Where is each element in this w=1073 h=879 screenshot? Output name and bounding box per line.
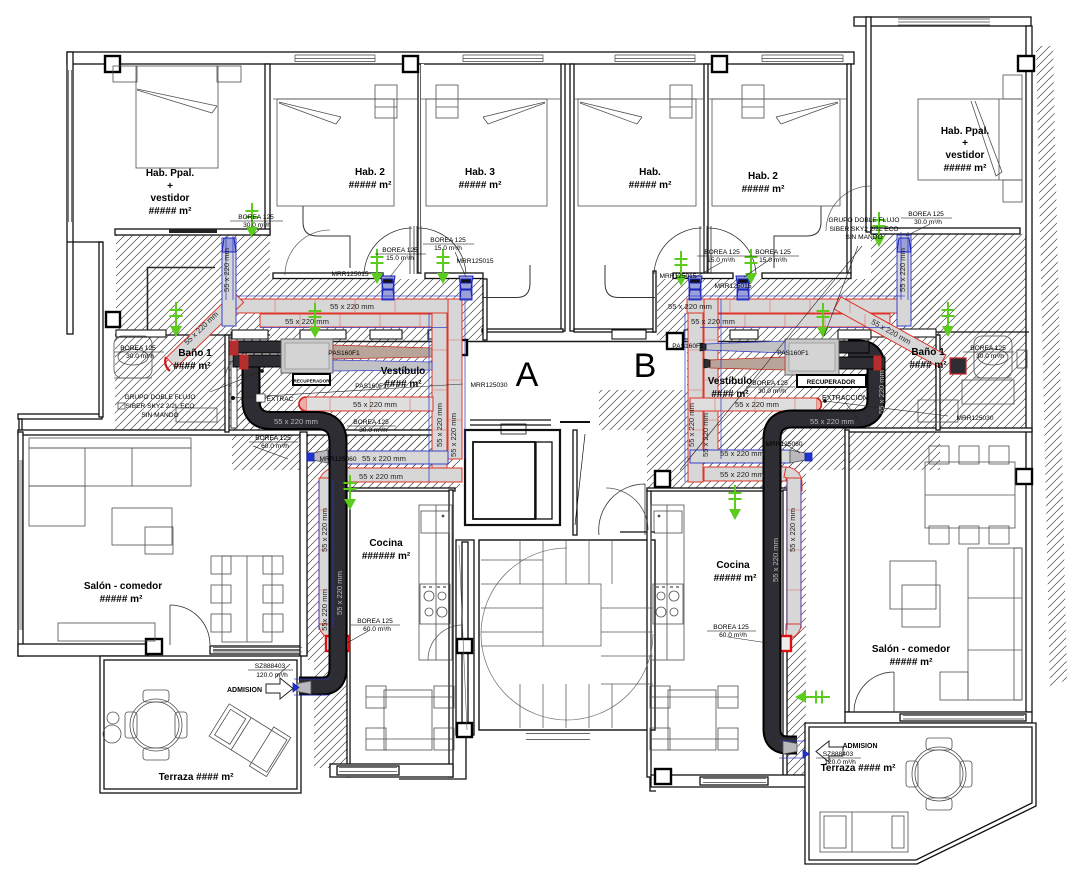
svg-text:##### m²: ##### m² <box>944 163 987 174</box>
svg-text:BOREA 125: BOREA 125 <box>120 345 156 352</box>
svg-text:##### m²: ##### m² <box>629 180 672 191</box>
svg-text:55 x 220 mm: 55 x 220 mm <box>788 508 797 552</box>
svg-text:##### m²: ##### m² <box>100 594 143 605</box>
svg-text:BOREA 125: BOREA 125 <box>908 211 944 218</box>
svg-text:Salón - comedor: Salón - comedor <box>872 644 950 655</box>
svg-text:##### m²: ##### m² <box>349 180 392 191</box>
svg-text:55 x 220 mm: 55 x 220 mm <box>735 400 779 409</box>
svg-text:EXTRAC: EXTRAC <box>267 396 294 403</box>
svg-text:GRUPO DOBLE FLUJO: GRUPO DOBLE FLUJO <box>828 217 899 224</box>
svg-text:MRR125015: MRR125015 <box>714 283 751 290</box>
svg-text:55 x 220 mm: 55 x 220 mm <box>274 417 318 426</box>
svg-text:60.0 m³/h: 60.0 m³/h <box>261 443 289 450</box>
svg-text:60.0 m³/h: 60.0 m³/h <box>719 632 747 639</box>
svg-text:120.0 m³/h: 120.0 m³/h <box>256 672 288 679</box>
svg-text:Cocina: Cocina <box>369 538 403 549</box>
svg-text:55 x 220 mm: 55 x 220 mm <box>771 538 780 582</box>
svg-text:BOREA 125: BOREA 125 <box>238 214 274 221</box>
svg-text:PAS160F1: PAS160F1 <box>355 383 387 390</box>
svg-text:Hab. 3: Hab. 3 <box>465 167 495 178</box>
svg-text:55 x 220 mm: 55 x 220 mm <box>222 248 231 292</box>
svg-text:60.0 m³/h: 60.0 m³/h <box>363 626 391 633</box>
svg-text:ADMISION: ADMISION <box>843 743 878 750</box>
svg-text:RECUPERADOR: RECUPERADOR <box>294 379 331 384</box>
svg-text:Cocina: Cocina <box>716 560 750 571</box>
svg-text:BOREA 125: BOREA 125 <box>382 247 418 254</box>
svg-text:BOREA 125: BOREA 125 <box>255 435 291 442</box>
svg-text:#### m²: #### m² <box>711 389 749 400</box>
svg-text:55 x 220 mm: 55 x 220 mm <box>320 508 329 552</box>
svg-text:BOREA 125: BOREA 125 <box>430 237 466 244</box>
svg-text:MRR125030: MRR125030 <box>956 415 993 422</box>
svg-text:PAS160F1: PAS160F1 <box>328 350 360 357</box>
svg-text:Hab. 2: Hab. 2 <box>355 167 385 178</box>
svg-text:Vestíbulo: Vestíbulo <box>381 366 425 377</box>
svg-text:##### m²: ##### m² <box>149 206 192 217</box>
svg-text:SIN MANDO: SIN MANDO <box>141 412 178 419</box>
svg-text:55 x 220 mm: 55 x 220 mm <box>353 400 397 409</box>
svg-text:##### m²: ##### m² <box>714 573 757 584</box>
svg-text:+: + <box>962 138 968 149</box>
svg-text:BOREA 125: BOREA 125 <box>755 249 791 256</box>
svg-text:30.0 m³/h: 30.0 m³/h <box>976 353 1004 360</box>
svg-text:55x 220 mm: 55x 220 mm <box>320 589 329 631</box>
svg-text:15.0 m³/h: 15.0 m³/h <box>759 257 787 264</box>
svg-text:#### m²: #### m² <box>173 361 211 372</box>
svg-text:55 x 220 mm: 55 x 220 mm <box>285 317 329 326</box>
svg-text:SZ888403: SZ888403 <box>823 751 854 758</box>
svg-text:GRUPO DOBLE FLUJO: GRUPO DOBLE FLUJO <box>124 394 195 401</box>
svg-text:55 x 220 mm: 55 x 220 mm <box>359 472 403 481</box>
svg-text:55 x 220 mm: 55 x 220 mm <box>720 449 764 458</box>
svg-text:30.0 m³/h: 30.0 m³/h <box>243 222 271 229</box>
svg-text:30.0 m³/h: 30.0 m³/h <box>914 219 942 226</box>
svg-text:A: A <box>516 356 539 394</box>
svg-text:Salón - comedor: Salón - comedor <box>84 581 162 592</box>
svg-text:55 x 220 mm: 55 x 220 mm <box>449 413 458 457</box>
svg-text:Terraza #### m²: Terraza #### m² <box>821 763 897 774</box>
svg-text:##### m²: ##### m² <box>459 180 502 191</box>
svg-text:###### m²: ###### m² <box>362 551 411 562</box>
svg-text:BOREA 125: BOREA 125 <box>713 624 749 631</box>
svg-text:Hab. 2: Hab. 2 <box>748 171 778 182</box>
svg-text:MRR125015: MRR125015 <box>456 258 493 265</box>
svg-text:55 x 220 mm: 55 x 220 mm <box>701 413 710 457</box>
svg-text:15.0 m³/h: 15.0 m³/h <box>434 245 462 252</box>
svg-text:Hab. Ppal.: Hab. Ppal. <box>941 126 990 137</box>
svg-text:##### m²: ##### m² <box>890 657 933 668</box>
svg-text:Terraza #### m²: Terraza #### m² <box>159 772 235 783</box>
svg-text:##### m²: ##### m² <box>742 184 785 195</box>
svg-text:MRR125060: MRR125060 <box>765 441 802 448</box>
svg-text:55 x 220 mm: 55 x 220 mm <box>362 454 406 463</box>
svg-text:BOREA 125: BOREA 125 <box>752 380 788 387</box>
svg-text:55 x 220 mm: 55 x 220 mm <box>435 403 444 447</box>
svg-text:55 x 220 mm: 55 x 220 mm <box>335 571 344 615</box>
svg-text:55 x 220 mm: 55 x 220 mm <box>691 317 735 326</box>
svg-text:BOREA 125: BOREA 125 <box>704 249 740 256</box>
svg-text:Baño 1: Baño 1 <box>911 347 945 358</box>
svg-text:Hab.: Hab. <box>639 167 661 178</box>
svg-text:#### m²: #### m² <box>384 379 422 390</box>
svg-text:BOREA 125: BOREA 125 <box>357 618 393 625</box>
svg-text:55 x 220 mm: 55 x 220 mm <box>720 470 764 479</box>
svg-text:15.0 m³/h: 15.0 m³/h <box>707 257 735 264</box>
svg-text:15.0 m³/h: 15.0 m³/h <box>386 255 414 262</box>
svg-text:55 x 220 mm: 55 x 220 mm <box>877 370 886 414</box>
svg-text:30.0 m³/h: 30.0 m³/h <box>359 427 387 434</box>
svg-text:55 x 220 mm: 55 x 220 mm <box>810 417 854 426</box>
svg-text:PAS160F1: PAS160F1 <box>672 343 704 350</box>
svg-text:+: + <box>167 181 173 192</box>
svg-text:ADMISION: ADMISION <box>227 687 262 694</box>
svg-text:SIN MANDO: SIN MANDO <box>845 234 882 241</box>
svg-text:Hab. Ppal.: Hab. Ppal. <box>146 168 195 179</box>
svg-text:Baño 1: Baño 1 <box>178 348 212 359</box>
svg-text:55 x 220 mm: 55 x 220 mm <box>898 248 907 292</box>
svg-text:SIBER SKY2 2/2L ECO: SIBER SKY2 2/2L ECO <box>125 403 194 410</box>
svg-text:MRR125015: MRR125015 <box>331 271 368 278</box>
svg-text:EXTRACCIÓN: EXTRACCIÓN <box>822 393 868 402</box>
svg-text:BOREA 125: BOREA 125 <box>353 419 389 426</box>
svg-text:B: B <box>634 347 657 385</box>
svg-text:MRR125015: MRR125015 <box>659 273 696 280</box>
svg-text:SIBER SKY2 2/2L ECO: SIBER SKY2 2/2L ECO <box>829 226 898 233</box>
svg-text:BOREA 125: BOREA 125 <box>970 345 1006 352</box>
svg-text:SZ888403: SZ888403 <box>255 663 286 670</box>
svg-text:30.0 m³/h: 30.0 m³/h <box>758 388 786 395</box>
svg-text:Vestíbulo: Vestíbulo <box>708 376 752 387</box>
svg-text:RECUPERADOR: RECUPERADOR <box>807 379 856 386</box>
svg-text:30.0 m³/h: 30.0 m³/h <box>126 353 154 360</box>
svg-text:vestidor: vestidor <box>946 150 985 161</box>
svg-text:PAS160F1: PAS160F1 <box>777 350 809 357</box>
svg-text:MRR125030: MRR125030 <box>470 382 507 389</box>
svg-text:MRR125060: MRR125060 <box>319 456 356 463</box>
svg-text:vestidor: vestidor <box>151 193 190 204</box>
svg-text:55 x 220 mm: 55 x 220 mm <box>687 403 696 447</box>
svg-text:55 x 220 mm: 55 x 220 mm <box>668 302 712 311</box>
svg-text:55 x 220 mm: 55 x 220 mm <box>330 302 374 311</box>
svg-text:#### m²: #### m² <box>909 360 947 371</box>
